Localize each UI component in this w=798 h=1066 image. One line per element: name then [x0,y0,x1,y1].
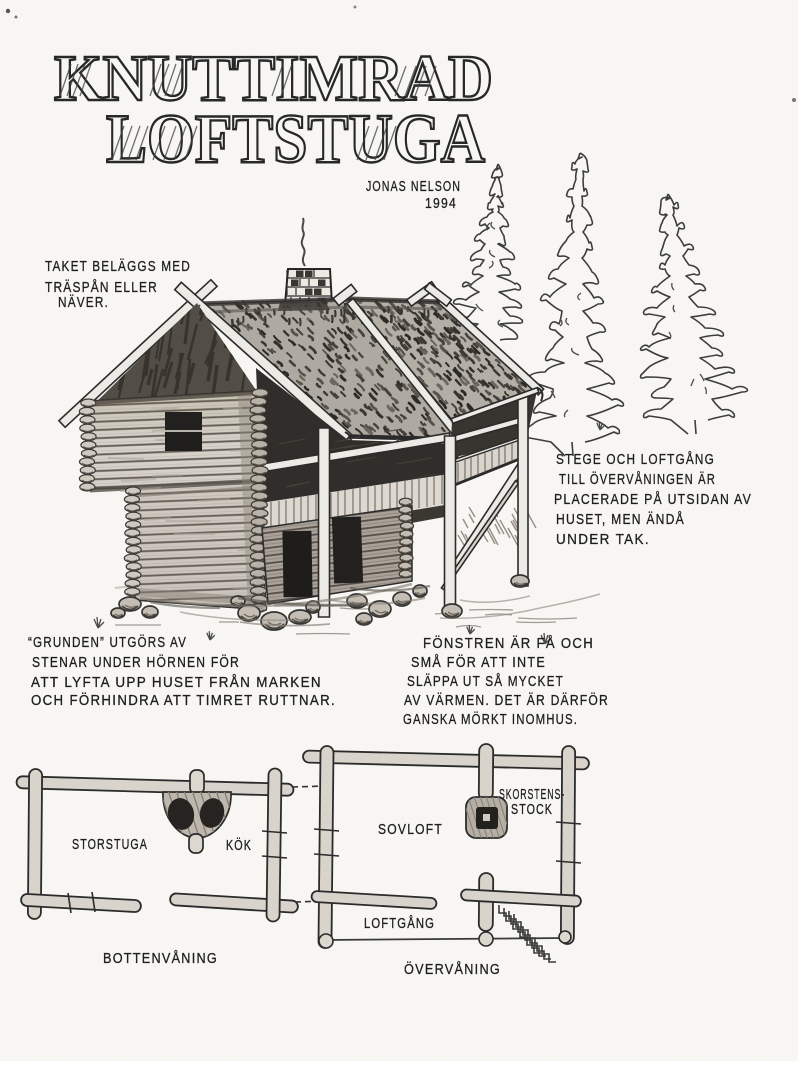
svg-text:SOVLOFT: SOVLOFT [378,821,443,838]
svg-text:LOFTGÅNG: LOFTGÅNG [364,915,435,932]
svg-text:1994: 1994 [425,195,457,212]
svg-text:FÖNSTREN ÄR FÅ OCH: FÖNSTREN ÄR FÅ OCH [423,634,594,652]
svg-text:LOFTSTUGA: LOFTSTUGA [106,101,485,178]
svg-text:JONAS NELSON: JONAS NELSON [366,178,461,195]
svg-text:STEGE OCH LOFTGÅNG: STEGE OCH LOFTGÅNG [556,451,715,468]
svg-text:HUSET, MEN ÄNDÅ: HUSET, MEN ÄNDÅ [556,511,685,528]
svg-text:TILL ÖVERVÅNINGEN ÄR: TILL ÖVERVÅNINGEN ÄR [559,470,716,488]
svg-text:GANSKA MÖRKT INOMHUS.: GANSKA MÖRKT INOMHUS. [403,710,578,728]
svg-text:STOCK: STOCK [511,801,553,818]
svg-text:“GRUNDEN” UTGÖRS AV: “GRUNDEN” UTGÖRS AV [28,633,187,651]
svg-text:NÄVER.: NÄVER. [58,294,109,311]
svg-text:TAKET BELÄGGS MED: TAKET BELÄGGS MED [45,258,191,275]
svg-text:SMÅ FÖR ATT INTE: SMÅ FÖR ATT INTE [411,653,546,671]
svg-text:ÖVERVÅNING: ÖVERVÅNING [404,960,501,978]
svg-text:STORSTUGA: STORSTUGA [72,836,148,853]
svg-text:AV VÄRMEN. DET ÄR DÄRFÖR: AV VÄRMEN. DET ÄR DÄRFÖR [404,691,609,709]
svg-text:OCH FÖRHINDRA ATT TIMRET RUTTN: OCH FÖRHINDRA ATT TIMRET RUTTNAR. [31,691,336,709]
svg-text:UNDER TAK.: UNDER TAK. [556,531,650,548]
svg-text:BOTTENVÅNING: BOTTENVÅNING [103,950,218,967]
svg-text:PLACERADE PÅ UTSIDAN AV: PLACERADE PÅ UTSIDAN AV [554,491,752,508]
svg-text:ATT LYFTA UPP HUSET FRÅN MARKE: ATT LYFTA UPP HUSET FRÅN MARKEN [31,674,322,691]
svg-text:KÖK: KÖK [226,836,252,854]
svg-text:SLÄPPA UT SÅ MYCKET: SLÄPPA UT SÅ MYCKET [407,673,564,690]
svg-text:STENAR UNDER HÖRNEN FÖR: STENAR UNDER HÖRNEN FÖR [32,653,240,671]
